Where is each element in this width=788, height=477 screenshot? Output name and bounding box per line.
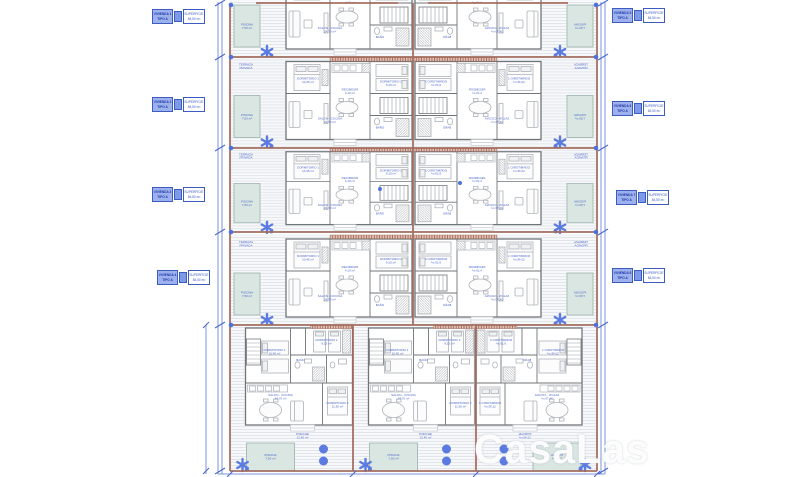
legend-swatch	[174, 11, 182, 22]
unit-label-6: VIVIENDA 6TIPO A SUPERFICIE84,50 m²	[612, 101, 665, 116]
unit-row1-right	[414, 0, 597, 58]
legend-swatch	[174, 189, 182, 200]
legend-swatch	[634, 103, 642, 114]
unit-label-5: VIVIENDA 5TIPO A SUPERFICIE84,50 m²	[612, 8, 665, 23]
unit-row4-right	[414, 235, 597, 326]
legend-swatch	[179, 272, 187, 283]
floor-plan-page: PISCINA 7,50 m²	[0, 0, 788, 477]
unit-row3-left	[230, 148, 413, 233]
unit-label-8: VIVIENDA 8TIPO A SUPERFICIE84,50 m²	[612, 268, 665, 283]
unit-label-3: VIVIENDA 3TIPO A SUPERFICIE84,50 m²	[152, 187, 205, 202]
unit-row4-left	[230, 235, 413, 326]
villa-bottom-1	[231, 325, 354, 471]
legend-swatch	[638, 192, 646, 203]
floor-plan-drawing: PISCINA 7,50 m²	[0, 0, 788, 477]
unit-label-7: VIVIENDA 7TIPO A SUPERFICIE84,50 m²	[616, 190, 669, 205]
villa-bottom-3	[474, 325, 597, 471]
unit-area-badge: SUPERFICIE 84,50 m²	[183, 9, 205, 24]
unit-row2-left	[230, 58, 413, 149]
unit-label-4: VIVIENDA 4TIPO A SUPERFICIE84,50 m²	[157, 270, 210, 285]
villa-bottom-2	[354, 325, 477, 471]
legend-swatch	[634, 10, 642, 21]
unit-row2-right	[414, 58, 597, 149]
unit-code-badge: VIVIENDA 1 TIPO A	[152, 9, 173, 24]
legend-swatch	[174, 99, 182, 110]
unit-row1-left	[230, 0, 413, 58]
legend-swatch	[634, 270, 642, 281]
unit-label-2: VIVIENDA 2TIPO A SUPERFICIE84,50 m²	[152, 97, 205, 112]
unit-label-1: VIVIENDA 1 TIPO A SUPERFICIE 84,50 m²	[152, 9, 205, 24]
unit-row3-right	[414, 148, 597, 233]
